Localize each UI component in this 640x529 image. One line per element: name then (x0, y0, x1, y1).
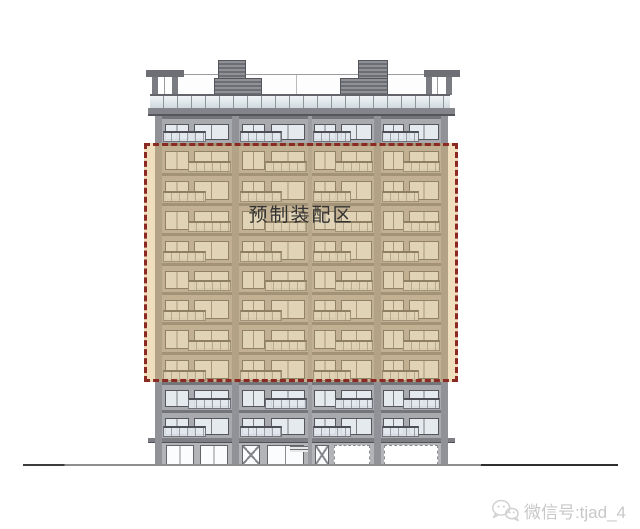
bay (162, 385, 232, 410)
storefront-bay (312, 443, 374, 465)
storefront-bay (162, 443, 232, 465)
window (165, 390, 189, 407)
bay (381, 413, 441, 438)
bay (239, 413, 308, 438)
bay (162, 119, 232, 143)
ground-floor (155, 443, 448, 465)
floor-row (155, 410, 448, 438)
roof-bulkhead-right (358, 60, 388, 80)
balcony-railing (188, 398, 231, 409)
balcony-railing (265, 398, 308, 409)
roof-pergola-column (152, 77, 158, 95)
balcony-railing (163, 131, 206, 142)
balcony-railing (313, 426, 351, 437)
roof-bulkhead-left (218, 60, 246, 80)
storefront-panel (242, 445, 260, 465)
floor-row (155, 382, 448, 410)
watermark-text: 微信号:tjad_4 (524, 498, 626, 523)
floor-row (155, 116, 448, 143)
roof-pergola-beam-right (424, 70, 460, 77)
bay (312, 119, 374, 143)
roof-pergola-column (446, 77, 452, 95)
balcony-railing (240, 426, 283, 437)
bay (162, 413, 232, 438)
balcony-railing (240, 131, 283, 142)
storefront-sign (290, 446, 310, 452)
storefront-panel (334, 445, 370, 465)
roof-pergola-column (426, 77, 432, 95)
bay (239, 385, 308, 410)
roof-slab (148, 108, 455, 116)
storefront-bay (381, 443, 441, 465)
storefront-panel (200, 445, 228, 465)
balcony-railing (335, 398, 373, 409)
storefront-panel (384, 445, 438, 465)
bay (381, 119, 441, 143)
prefab-zone-overlay: 预制装配区 (144, 143, 458, 382)
storefront-panel (166, 445, 194, 465)
roof-pergola-beam-left (146, 70, 184, 77)
watermark: 微信号:tjad_4 (491, 498, 626, 523)
roof-pergola-column (172, 77, 178, 95)
bay (381, 385, 441, 410)
balcony-railing (382, 426, 419, 437)
zone-label: 预制装配区 (248, 200, 353, 227)
window (383, 390, 403, 407)
bay (312, 413, 374, 438)
window (242, 390, 265, 407)
balcony-railing (403, 398, 440, 409)
bay (239, 119, 308, 143)
window (314, 390, 335, 407)
bay (312, 385, 374, 410)
ground-line (23, 464, 618, 466)
roof-penthouse-wall (164, 74, 438, 96)
elevation-drawing-canvas: 预制装配区 微信号:tjad_4 (0, 0, 640, 529)
balcony-railing (163, 426, 206, 437)
balcony-railing (313, 131, 351, 142)
balcony-railing (382, 131, 419, 142)
storefront-panel (315, 445, 329, 465)
wechat-icon (491, 499, 519, 522)
